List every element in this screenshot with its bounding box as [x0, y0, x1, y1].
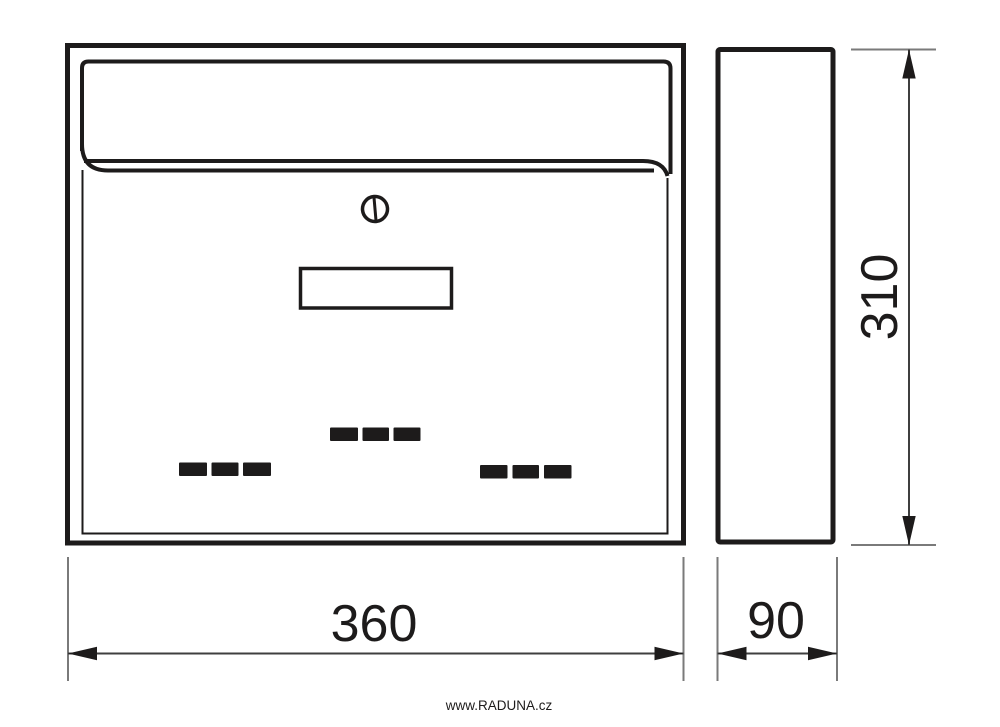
front-door-outline: [83, 170, 668, 534]
technical-drawing-canvas: 360 90 310 www.RADUNA.cz: [0, 0, 1000, 727]
front-view: [68, 46, 684, 544]
side-view: [718, 50, 833, 543]
side-view-outline: [718, 50, 833, 543]
lock-slot: [374, 197, 376, 222]
dimension-height: 310: [851, 50, 936, 546]
arrowhead-left-icon: [68, 647, 97, 660]
dash: [330, 428, 358, 442]
letter-flap-outline: [82, 62, 671, 175]
text-dashes-right: [480, 465, 572, 479]
text-dashes-left: [179, 463, 271, 477]
dimension-height-label: 310: [851, 254, 909, 341]
dimension-width-label: 360: [331, 595, 418, 653]
nameplate: [301, 269, 452, 309]
website-caption: www.RADUNA.cz: [445, 698, 553, 713]
dash: [480, 465, 508, 479]
dash: [212, 463, 239, 477]
dash: [243, 463, 271, 477]
dash: [544, 465, 572, 479]
arrowhead-up-icon: [902, 50, 915, 79]
arrowhead-left-icon: [718, 647, 747, 660]
dash: [394, 428, 421, 442]
text-dashes-middle: [330, 428, 421, 442]
arrowhead-down-icon: [902, 516, 915, 545]
arrowhead-right-icon: [655, 647, 684, 660]
dimension-depth: 90: [718, 557, 838, 681]
dash: [179, 463, 207, 477]
dimension-width: 360: [68, 557, 684, 681]
lock-icon: [361, 195, 388, 222]
mailbox-dimension-diagram: 360 90 310 www.RADUNA.cz: [0, 0, 1000, 727]
dash: [513, 465, 540, 479]
dimension-depth-label: 90: [747, 592, 805, 650]
dash: [363, 428, 390, 442]
arrowhead-right-icon: [808, 647, 837, 660]
